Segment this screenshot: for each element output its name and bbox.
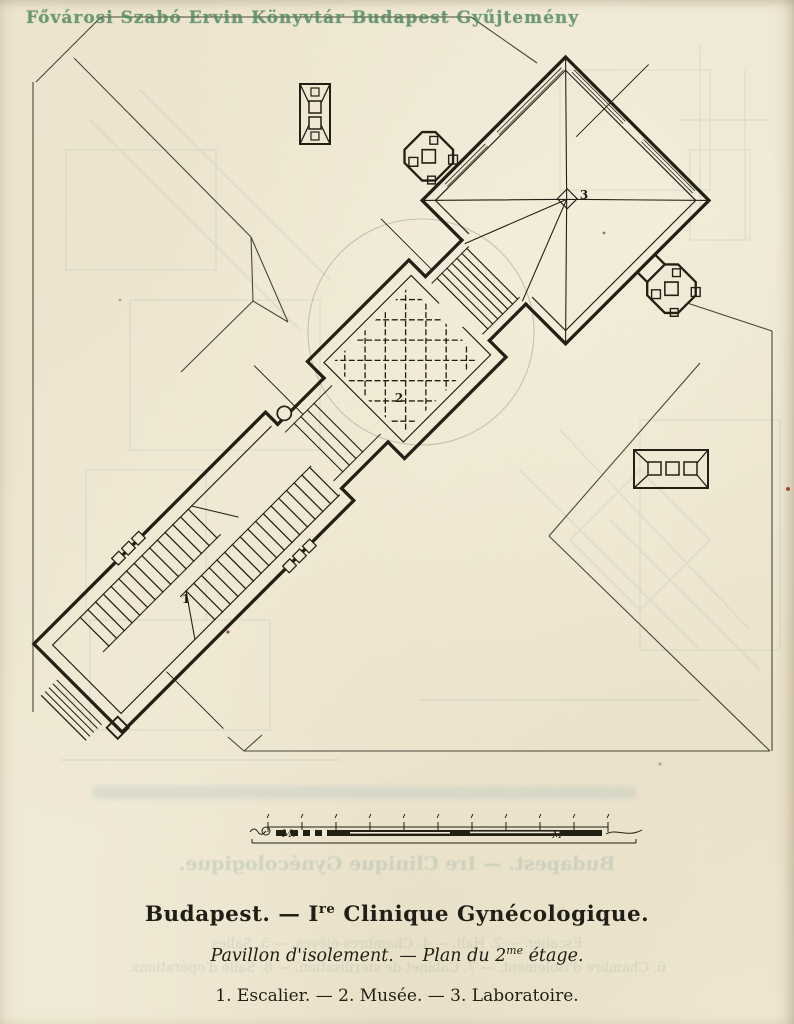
scale-right-label: M bbox=[551, 830, 563, 841]
plan-labels: 1 2 3 bbox=[182, 188, 588, 606]
plan-label-2: 2 bbox=[395, 391, 403, 405]
round-feature bbox=[274, 403, 294, 423]
pavilion-laboratoire bbox=[388, 0, 790, 387]
plan-label-1: 1 bbox=[182, 592, 190, 606]
caption-title: Budapest. — Ire Clinique Gynécologique. bbox=[0, 901, 794, 927]
plan-label-3: 3 bbox=[580, 188, 588, 202]
site-roof-lines bbox=[33, 17, 772, 751]
scanned-plan-page: Budapest. — Ire Clinique Gynécologique. … bbox=[0, 0, 794, 1024]
scale-left-label: M. bbox=[281, 829, 295, 840]
caption-title-sup: re bbox=[319, 901, 336, 917]
caption-subtitle-post: étage. bbox=[523, 946, 584, 966]
chimney-cluster-a bbox=[398, 125, 463, 190]
window-triplet bbox=[112, 450, 317, 655]
museum bbox=[156, 111, 655, 610]
stairs bbox=[375, 189, 526, 340]
scale-bar: M. M bbox=[250, 814, 642, 843]
chimney-symbol-vertical bbox=[300, 84, 330, 144]
caption-subtitle: Pavillon d'isolement. — Plan du 2me étag… bbox=[0, 944, 794, 966]
caption-title-pre: Budapest. — I bbox=[145, 902, 319, 927]
wing-escalier bbox=[8, 408, 402, 802]
museum-grid bbox=[156, 111, 655, 610]
chimney-cluster-b bbox=[631, 248, 705, 322]
caption-subtitle-sup: me bbox=[506, 944, 523, 957]
floor-plan bbox=[0, 0, 794, 835]
chimney-symbol-horizontal bbox=[634, 450, 708, 488]
stair-hatching-upper bbox=[75, 488, 238, 651]
caption-legend: 1. Escalier. — 2. Musée. — 3. Laboratoir… bbox=[0, 986, 794, 1006]
caption-title-post: Clinique Gynécologique. bbox=[335, 902, 649, 927]
paper-specks bbox=[119, 232, 790, 766]
caption-subtitle-pre: Pavillon d'isolement. — Plan du 2 bbox=[210, 946, 506, 966]
watermark-text: Fővárosi Szabó Ervin Könyvtár Budapest G… bbox=[26, 8, 586, 28]
stair-hatching-lower bbox=[166, 466, 339, 639]
floor-plan-scan: 1 2 3 bbox=[0, 0, 794, 1024]
